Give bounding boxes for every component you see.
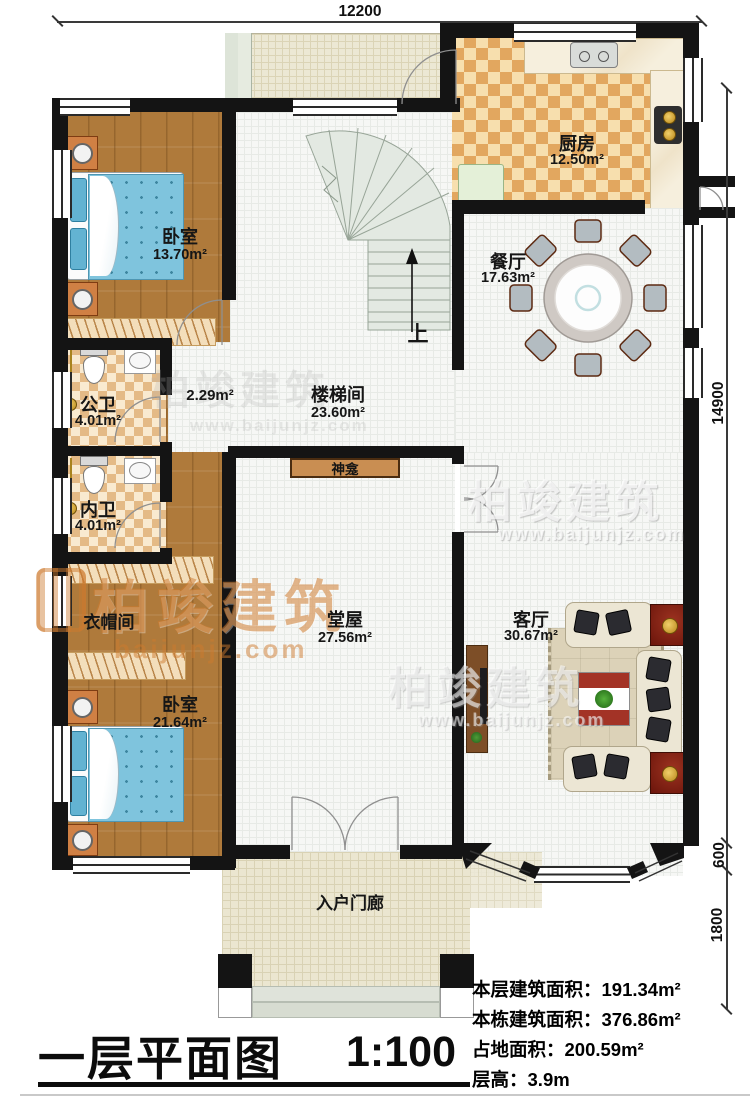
kitchen-sink — [570, 42, 618, 68]
room-area-private-bath: 4.01m² — [53, 519, 143, 534]
wall — [452, 446, 464, 464]
nightstand — [66, 824, 98, 856]
stat-value: 376.86m² — [602, 1009, 681, 1030]
terrace-step — [225, 33, 239, 105]
window — [683, 58, 703, 122]
pillar-base — [440, 986, 474, 1018]
porch-pillar — [440, 954, 474, 988]
wall — [683, 22, 699, 58]
room-label-bedroom-top: 卧室 — [135, 228, 225, 247]
tv-cabinet — [466, 645, 488, 753]
wardrobe — [66, 652, 186, 680]
pillar-base — [218, 986, 252, 1018]
main-hall-floor — [235, 452, 455, 852]
cushion — [571, 753, 598, 780]
bay-window — [534, 866, 630, 883]
stat-row: 层高：3.9m — [472, 1066, 570, 1092]
window — [73, 856, 190, 874]
page-title: 一层平面图 — [38, 1020, 283, 1089]
wall — [460, 200, 645, 214]
window — [52, 726, 72, 802]
dimension-line-top — [57, 21, 702, 23]
room-area-public-bath: 4.01m² — [53, 414, 143, 429]
wall — [52, 552, 172, 564]
wall — [688, 176, 735, 187]
room-label-porch: 入户门廊 — [295, 895, 405, 913]
stove — [654, 106, 682, 144]
dining-floor — [455, 208, 683, 452]
floor-plan: 神龛 — [0, 0, 750, 1110]
porch-pillar — [218, 954, 252, 988]
wall — [52, 856, 73, 870]
porch-step — [252, 986, 440, 1002]
shrine-label: 神龛 — [332, 458, 359, 478]
title-underline — [38, 1082, 470, 1087]
porch-floor — [222, 852, 470, 986]
window — [683, 225, 703, 328]
wall — [130, 98, 293, 112]
wall — [683, 398, 699, 846]
stat-label: 层高： — [472, 1069, 528, 1090]
sink-basin — [129, 462, 151, 479]
stat-value: 191.34m² — [602, 979, 681, 1000]
cushion — [573, 609, 600, 636]
wall — [52, 98, 60, 112]
rear-terrace-floor — [225, 33, 460, 107]
room-label-bedroom-bottom: 卧室 — [135, 696, 225, 715]
dimension-right-total: 14900 — [710, 363, 728, 443]
wall — [52, 338, 172, 350]
window — [683, 348, 703, 398]
stat-label: 本层建筑面积： — [472, 979, 602, 1000]
window — [293, 98, 397, 116]
cushion — [646, 687, 672, 713]
coffee-table — [578, 672, 630, 726]
toilet — [80, 456, 108, 466]
room-area-bedroom-top: 13.70m² — [135, 248, 225, 263]
plant — [471, 732, 482, 743]
title-underline-thin — [20, 1094, 750, 1096]
wall — [52, 446, 162, 456]
pillow — [70, 776, 87, 816]
stat-value: 3.9m — [528, 1069, 570, 1090]
stairs-up-label: 上 — [400, 324, 436, 346]
room-area-small-hall: 2.29m² — [175, 388, 245, 404]
terrace-step — [238, 33, 252, 105]
wall — [688, 207, 735, 218]
dimension-right-bay: 600 — [711, 830, 729, 880]
room-area-main-hall: 27.56m² — [300, 631, 390, 646]
room-area-bedroom-bottom: 21.64m² — [135, 716, 225, 731]
wall — [683, 328, 699, 348]
stat-row: 本层建筑面积：191.34m² — [472, 976, 681, 1002]
room-label-cloakroom: 衣帽间 — [64, 614, 154, 632]
wall — [222, 452, 236, 868]
room-area-dining: 17.63m² — [463, 271, 553, 286]
stat-label: 占地面积： — [472, 1039, 565, 1060]
wall — [222, 845, 290, 859]
wall — [160, 338, 172, 395]
cushion — [645, 656, 672, 683]
sink-basin — [129, 352, 151, 369]
cushion — [645, 716, 672, 743]
page-title-scale: 1:100 — [346, 1028, 456, 1077]
wall — [228, 446, 464, 458]
cushion — [605, 609, 632, 636]
pillow — [70, 178, 87, 222]
dimension-right-porch: 1800 — [709, 895, 727, 955]
side-paving — [470, 852, 542, 908]
blanket — [90, 176, 119, 276]
dimension-top-value: 12200 — [310, 3, 410, 21]
nightstand — [66, 282, 98, 316]
pillow — [70, 228, 87, 270]
nightstand — [66, 690, 98, 724]
window — [60, 98, 130, 116]
blanket — [90, 729, 119, 819]
porch-step — [252, 1002, 440, 1018]
wall — [400, 845, 462, 859]
window — [52, 150, 72, 218]
cushion — [603, 753, 630, 780]
window — [514, 22, 636, 42]
stat-value: 200.59m² — [565, 1039, 644, 1060]
stat-row: 本栋建筑面积：376.86m² — [472, 1006, 681, 1032]
stat-label: 本栋建筑面积： — [472, 1009, 602, 1030]
wall — [222, 108, 236, 300]
room-area-living: 30.67m² — [486, 629, 576, 644]
room-area-stair-hall: 23.60m² — [293, 406, 383, 421]
room-area-kitchen: 12.50m² — [532, 153, 622, 168]
shrine-shelf: 神龛 — [290, 458, 400, 478]
room-label-main-hall: 堂屋 — [300, 611, 390, 630]
room-label-stair-hall: 楼梯间 — [293, 386, 383, 405]
wall — [452, 532, 464, 848]
stat-row: 占地面积：200.59m² — [472, 1036, 644, 1062]
plant — [595, 690, 613, 708]
wall — [440, 22, 456, 102]
pillow — [70, 731, 87, 771]
